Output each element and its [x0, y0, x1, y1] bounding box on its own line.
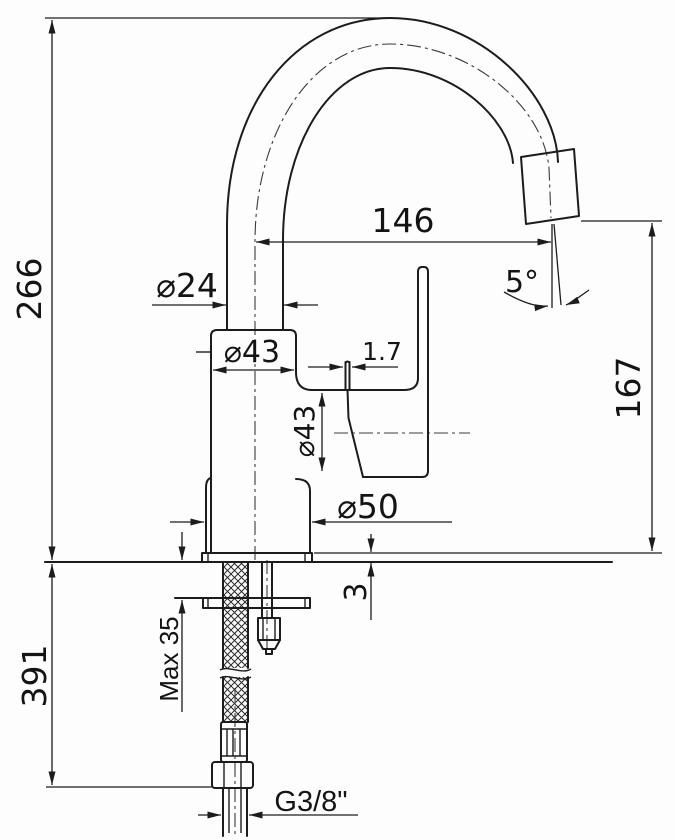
stud-nut	[258, 618, 280, 640]
hex-nut	[212, 762, 253, 788]
centerlines	[196, 44, 551, 836]
dimension-167: 167	[581, 221, 662, 551]
dim-5deg-label: 5°	[505, 265, 539, 300]
dimension-1-7: 1.7	[308, 337, 402, 367]
hose-braid-lower	[223, 677, 248, 722]
dimension-3: 3	[339, 534, 374, 620]
hose-braid-upper	[223, 563, 248, 668]
stud-nut-taper	[258, 640, 280, 654]
dim-d43v-label: ⌀43	[288, 405, 321, 458]
dim-266-label: 266	[10, 258, 49, 321]
handle-blade-cap	[346, 362, 350, 364]
dim-146-label: 146	[372, 201, 435, 240]
dim-max35-label: Max 35	[154, 616, 184, 701]
dim-17-label: 1.7	[362, 337, 402, 366]
dim-391-label: 391	[15, 645, 54, 708]
angle-arc-right	[566, 290, 589, 305]
dim-3-label: 3	[339, 582, 374, 601]
base-plate	[202, 553, 312, 562]
dimension-5deg: 5°	[504, 224, 589, 308]
spout-inner-arc	[283, 68, 513, 330]
faucet-dimension-drawing: 266 391 146 5° 167 ⌀24 ⌀43 1.7 ⌀43	[0, 0, 675, 840]
angle-ref-tilted	[554, 224, 561, 305]
spout-centerline	[255, 44, 551, 560]
drawing-canvas: 266 391 146 5° 167 ⌀24 ⌀43 1.7 ⌀43	[0, 0, 675, 840]
dimension-d43-vertical: ⌀43	[288, 393, 322, 471]
dimension-max35: Max 35	[154, 532, 184, 712]
dim-167-label: 167	[609, 357, 648, 420]
dim-d50-label: ⌀50	[337, 487, 399, 526]
dimension-d43-horizontal: ⌀43	[213, 335, 294, 370]
hose-break-line-top	[220, 669, 251, 671]
body-lower-right	[296, 479, 310, 553]
body-right-step	[296, 336, 312, 390]
dim-g38-label: G3/8"	[274, 786, 347, 818]
dim-d24-label: ⌀24	[156, 266, 218, 305]
dimension-d24: ⌀24	[152, 266, 318, 305]
dim-d43h-label: ⌀43	[224, 335, 280, 370]
handle-lever	[312, 267, 428, 477]
dimension-146: 146	[256, 201, 551, 242]
